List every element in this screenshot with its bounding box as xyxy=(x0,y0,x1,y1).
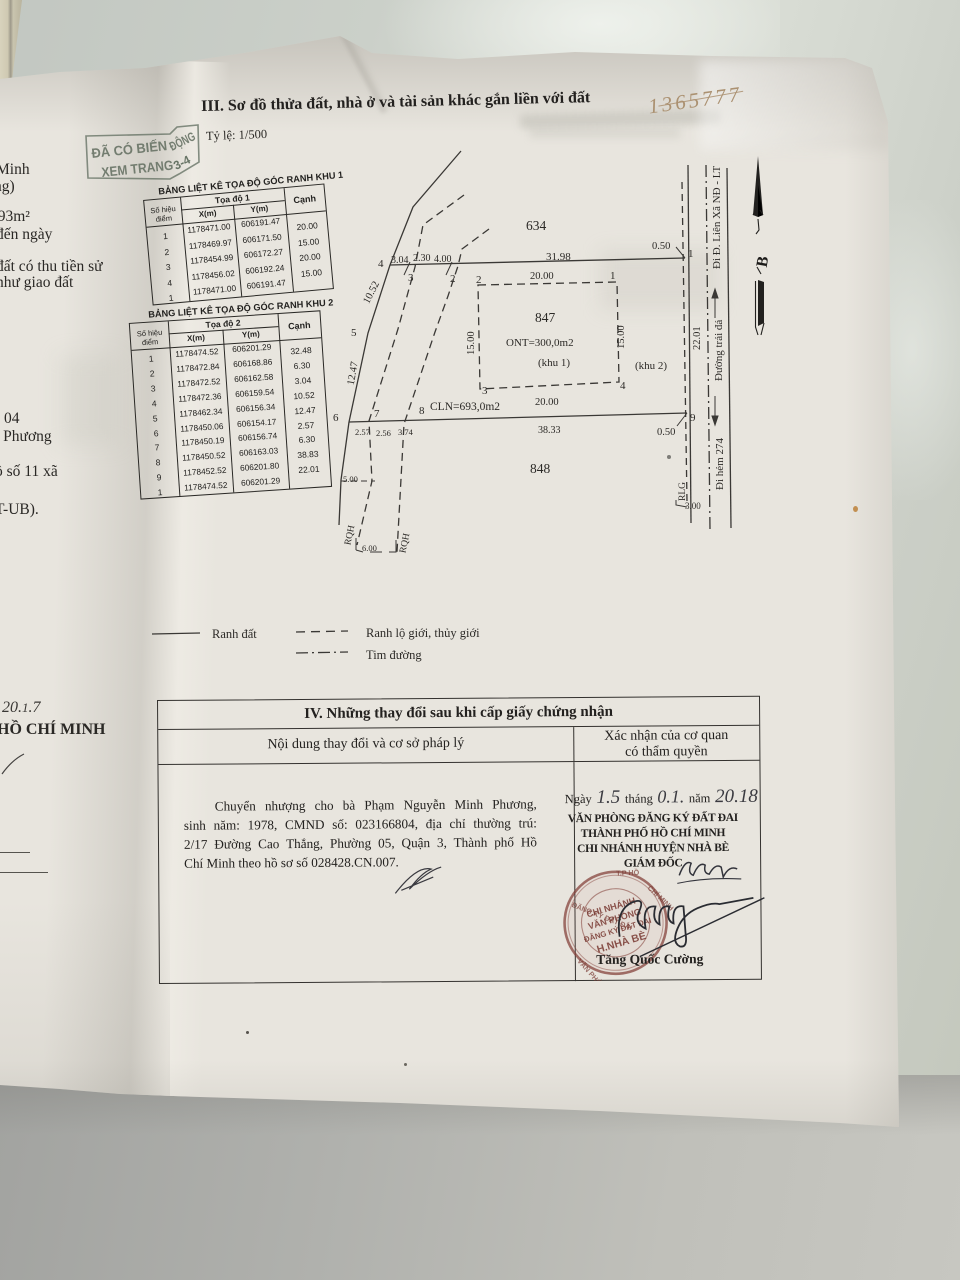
svg-text:RQH: RQH xyxy=(398,532,412,554)
svg-text:38.33: 38.33 xyxy=(538,425,561,436)
svg-text:848: 848 xyxy=(530,461,551,476)
svg-text:5: 5 xyxy=(351,327,357,339)
svg-text:15.00: 15.00 xyxy=(616,325,627,349)
svg-text:ONT=300,0m2: ONT=300,0m2 xyxy=(506,337,574,349)
svg-text:3.00: 3.00 xyxy=(685,501,701,511)
svg-text:Ranh đất: Ranh đất xyxy=(212,627,257,641)
svg-text:2.57: 2.57 xyxy=(355,427,370,437)
svg-text:RLG: RLG xyxy=(678,482,688,501)
svg-text:6: 6 xyxy=(333,412,339,424)
svg-text:20.00: 20.00 xyxy=(530,271,554,282)
svg-text:0.50: 0.50 xyxy=(657,427,675,438)
svg-text:1: 1 xyxy=(610,270,616,282)
svg-text:2.56: 2.56 xyxy=(376,428,391,438)
svg-text:1: 1 xyxy=(688,248,694,260)
svg-text:3.04: 3.04 xyxy=(391,255,409,266)
svg-text:XEM TRANG: XEM TRANG xyxy=(101,158,174,180)
svg-text:Đi hẻm 274: Đi hẻm 274 xyxy=(714,438,726,490)
svg-text:Đi Đ. Liên Xã NĐ - LT: Đi Đ. Liên Xã NĐ - LT xyxy=(711,166,723,269)
svg-text:RQH: RQH xyxy=(343,524,357,546)
svg-text:(khu 1): (khu 1) xyxy=(538,357,570,369)
svg-text:4: 4 xyxy=(378,258,384,270)
svg-text:2: 2 xyxy=(450,273,456,285)
svg-text:2: 2 xyxy=(476,274,482,286)
svg-text:3: 3 xyxy=(482,385,488,397)
svg-text:847: 847 xyxy=(535,310,556,325)
svg-text:3: 3 xyxy=(408,272,414,284)
svg-text:2.30: 2.30 xyxy=(413,253,431,264)
svg-text:4: 4 xyxy=(620,380,626,392)
svg-text:12.47: 12.47 xyxy=(346,361,361,386)
svg-text:Tim đường: Tim đường xyxy=(366,648,422,662)
svg-text:Đường trải đá: Đường trải đá xyxy=(713,320,725,381)
svg-text:3.74: 3.74 xyxy=(398,427,414,437)
svg-text:20.00: 20.00 xyxy=(535,397,559,408)
svg-text:3-4: 3-4 xyxy=(171,153,193,173)
svg-text:15.00: 15.00 xyxy=(466,331,477,355)
svg-text:6.00: 6.00 xyxy=(362,543,377,553)
svg-text:ĐÃ CÓ BIẾN: ĐÃ CÓ BIẾN xyxy=(91,138,168,161)
svg-text:22.01: 22.01 xyxy=(692,326,703,350)
svg-text:10.52: 10.52 xyxy=(362,280,383,306)
svg-text:5.00: 5.00 xyxy=(343,474,358,484)
svg-text:9: 9 xyxy=(690,412,696,424)
svg-text:634: 634 xyxy=(526,218,547,233)
svg-text:8: 8 xyxy=(419,405,425,417)
svg-text:CLN=693,0m2: CLN=693,0m2 xyxy=(430,401,500,413)
svg-text:0.50: 0.50 xyxy=(652,241,670,252)
svg-text:B: B xyxy=(754,255,773,269)
svg-text:7: 7 xyxy=(374,408,380,420)
svg-text:(khu 2): (khu 2) xyxy=(635,360,667,372)
svg-text:Ranh lộ giới, thủy giới: Ranh lộ giới, thủy giới xyxy=(366,626,480,640)
svg-text:31.98: 31.98 xyxy=(546,251,571,263)
svg-text:4.00: 4.00 xyxy=(434,254,452,265)
